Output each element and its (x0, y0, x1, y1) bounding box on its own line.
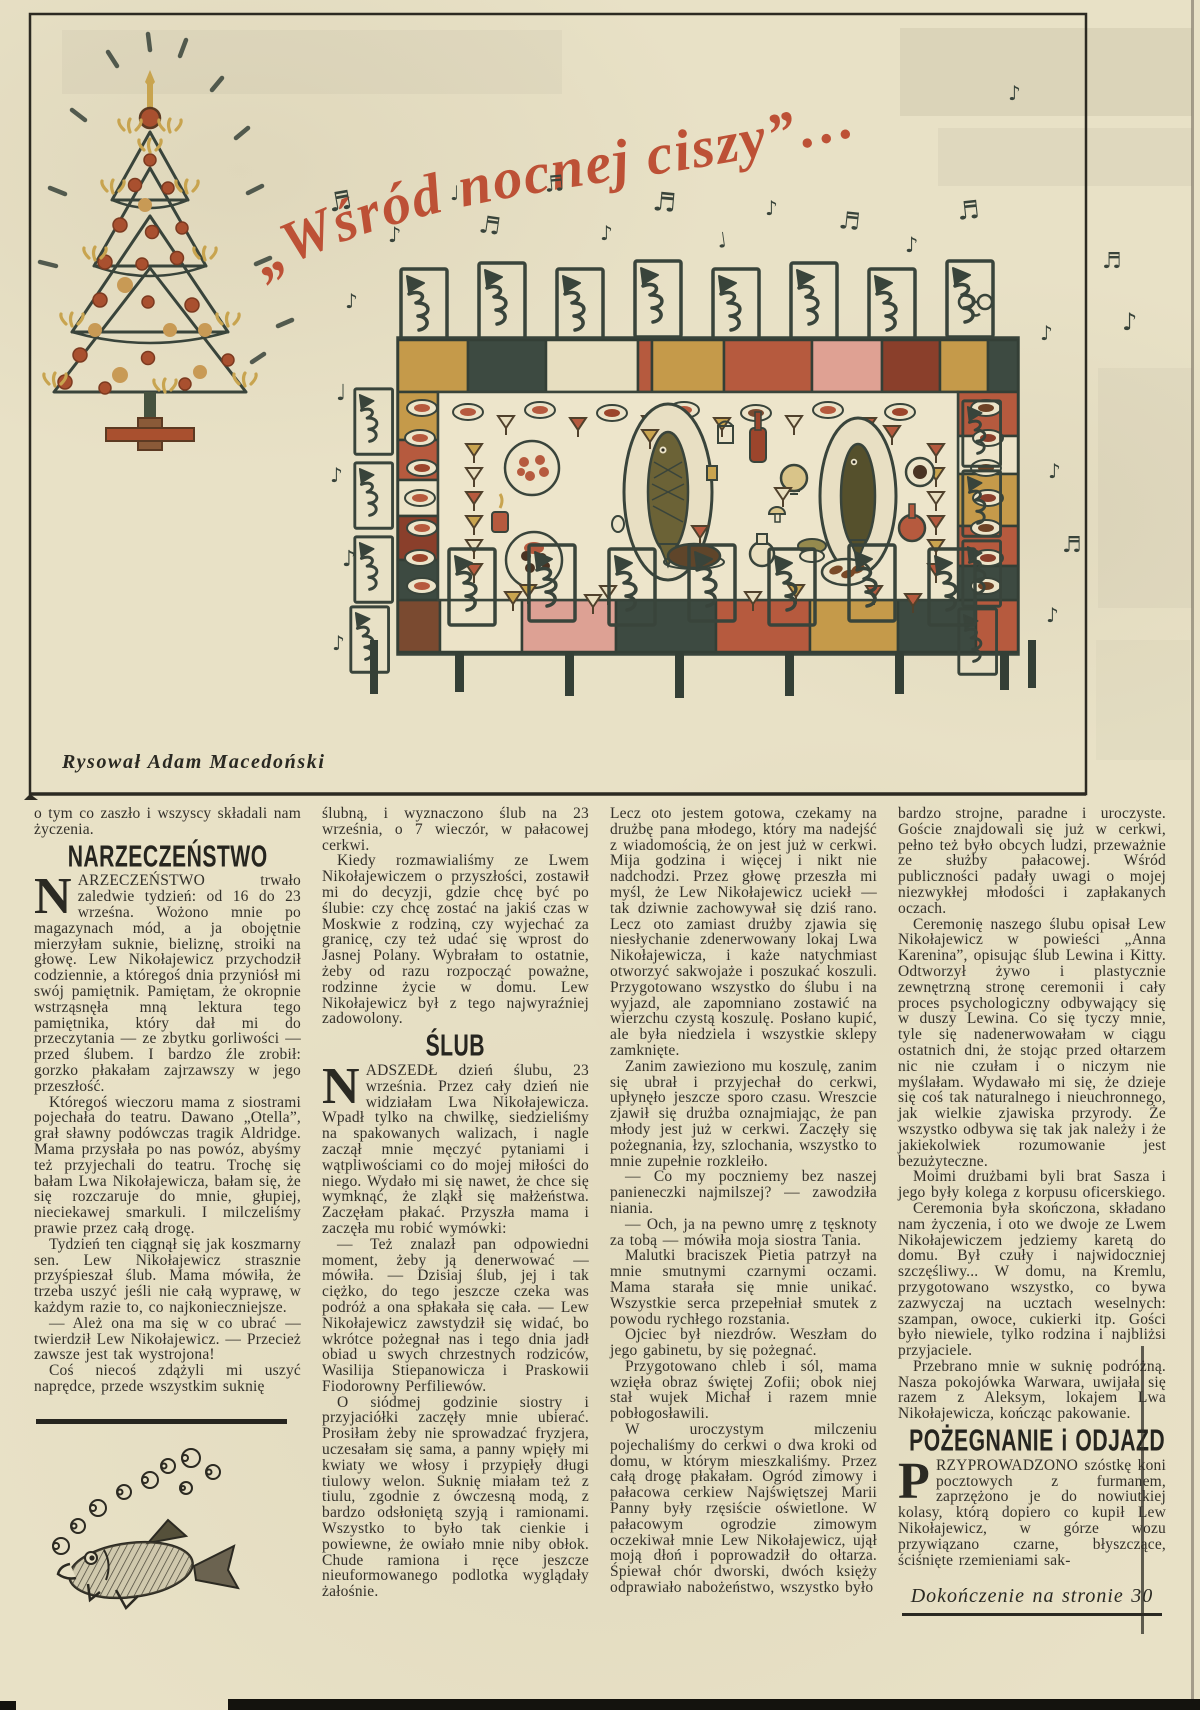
paragraph: Moimi drużbami byli brat Sasza i jego by… (898, 1169, 1166, 1201)
paragraph: Malutki braciszek Pietia patrzył na mnie… (610, 1248, 877, 1327)
music-note-icon: ♬ (837, 206, 861, 236)
column-2: ślubną, i wyznaczono ślub na 23 września… (322, 806, 589, 1651)
paragraph-dropcap: NARZECZEŃSTWO trwało zaledwie tydzień: o… (34, 873, 301, 1094)
music-note-icon: ♬ (1102, 249, 1122, 274)
paragraph: Lecz oto jestem gotowa, czekamy na drużb… (610, 806, 877, 1059)
magazine-page: „Wśród nocnej ciszy”… ♬ ♪ ♩ ♬ ♬ ♪ ♬ ♩ ♪ … (0, 0, 1200, 1710)
music-note-icon: ♩ (336, 381, 346, 406)
bubbles (53, 1449, 220, 1554)
paragraph: Któregoś wieczoru mama z siostrami pojec… (34, 1095, 301, 1237)
music-note-icon: ♪ (1040, 321, 1053, 345)
paragraph: W uroczystym milczeniu pojechaliśmy do c… (610, 1422, 877, 1596)
paragraph: Przebrano mnie w suknię podróżną. Nasza … (898, 1359, 1166, 1422)
paragraph: Przygotowano chleb i sól, mama wzięła ob… (610, 1359, 877, 1422)
section-heading-slub: ŚLUB (322, 1038, 589, 1054)
music-note-icon: ♪ (1048, 459, 1061, 483)
paragraph: — Też znalazł pan odpowiedni moment, żeb… (322, 1237, 589, 1395)
column-3: Lecz oto jestem gotowa, czekamy na drużb… (610, 806, 877, 1651)
drop-initial: N (34, 873, 78, 918)
section-heading-pozegnanie: POŻEGNANIE i ODJAZD (898, 1433, 1166, 1449)
section-heading-narzeczenstwo: NARZECZEŃSTWO (34, 849, 301, 865)
fish-body (58, 1520, 238, 1608)
music-note-icon: ♪ (905, 233, 918, 257)
continuation-note: Dokończenie na stronie 30 (902, 1584, 1162, 1616)
page-edge-mark (0, 1701, 16, 1710)
music-note-icon: ♪ (345, 289, 358, 313)
heading-label: ŚLUB (426, 1036, 485, 1057)
paragraph: ślubną, i wyznaczono ślub na 23 września… (322, 806, 589, 853)
paragraph: Ojciec był niezdrów. Weszłam do jego gab… (610, 1327, 877, 1359)
spectacles-doodle (959, 295, 992, 316)
fish-illustration (36, 1438, 271, 1648)
article-columns: o tym co zaszło i wszyscy składali nam ż… (34, 806, 1166, 1651)
paragraph: Kiedy rozmawialiśmy ze Lwem Nikołajewicz… (322, 853, 589, 1027)
paragraph-dropcap: PRZYPROWADZONO szóstkę koni pocztowych z… (898, 1458, 1166, 1569)
banquet-table-illustration (351, 261, 1036, 698)
page-edge-bar (228, 1699, 1200, 1710)
paragraph: — Co my poczniemy bez naszej panieneczki… (610, 1169, 877, 1216)
chairs-left (351, 389, 393, 672)
paragraph: Zanim zawieziono mu koszulę, zanim się u… (610, 1059, 877, 1170)
divider-rule (36, 1419, 287, 1424)
music-note-icon: ♪ (388, 223, 401, 247)
column-4: bardzo strojne, paradne i uroczyste. Goś… (898, 806, 1166, 1651)
music-note-icon: ♪ (330, 463, 343, 487)
headpiece-illustration: „Wśród nocnej ciszy”… ♬ ♪ ♩ ♬ ♬ ♪ ♬ ♩ ♪ … (0, 0, 1200, 800)
illustration-credit: Rysował Adam Macedoński (62, 752, 326, 772)
music-note-icon: ♪ (765, 196, 778, 220)
music-note-icon: ♬ (1062, 533, 1082, 558)
drop-initial: N (322, 1063, 366, 1108)
music-note-icon: ♪ (1122, 308, 1137, 336)
page-artifact-line (1141, 1346, 1144, 1634)
music-note-icon: ♪ (332, 631, 345, 655)
paragraph-continued: o tym co zaszło i wszyscy składali nam ż… (34, 806, 301, 838)
music-note-icon: ♪ (1008, 81, 1021, 105)
page-edge-line (1191, 0, 1194, 1710)
paragraph: — Ależ ona ma się w co ubrać — twierdził… (34, 1316, 301, 1363)
column-1: o tym co zaszło i wszyscy składali nam ż… (34, 806, 301, 1651)
music-note-icon: ♪ (1046, 603, 1059, 627)
paragraph: Ceremonię naszego ślubu opisał Lew Nikoł… (898, 917, 1166, 1170)
music-note-icon: ♬ (477, 210, 502, 241)
music-note-icon: ♪ (600, 221, 613, 245)
paragraph: — Och, ja na pewno umrę z tęsknoty za to… (610, 1217, 877, 1249)
music-note-icon: ♩ (450, 181, 459, 205)
music-note-icon: ♬ (956, 195, 981, 226)
paragraph: O siódmej godzinie siostry i przyjaciółk… (322, 1395, 589, 1600)
paragraph: Ceremonia była skończona, składano nam ż… (898, 1201, 1166, 1359)
music-note-icon: ♩ (715, 228, 728, 253)
paragraph: Coś niecoś zdążyli mi uszyć naprędce, pr… (34, 1363, 301, 1395)
paragraph-text: RZYPROWADZONO szóstkę koni pocztowych z … (898, 1457, 1166, 1569)
paragraph: Tydzień ten ciągnął się jak koszmarny se… (34, 1237, 301, 1316)
drop-initial: P (898, 1458, 936, 1503)
music-note-icon: ♬ (543, 171, 565, 198)
paragraph-dropcap: NADSZEDŁ dzień ślubu, 23 września. Przez… (322, 1063, 589, 1237)
chairs-top (401, 261, 993, 345)
paragraph: bardzo strojne, paradne i uroczyste. Goś… (898, 806, 1166, 917)
music-note-icon: ♬ (651, 187, 677, 219)
heading-label: NARZECZEŃSTWO (68, 846, 268, 867)
heading-label: POŻEGNANIE i ODJAZD (909, 1431, 1165, 1452)
